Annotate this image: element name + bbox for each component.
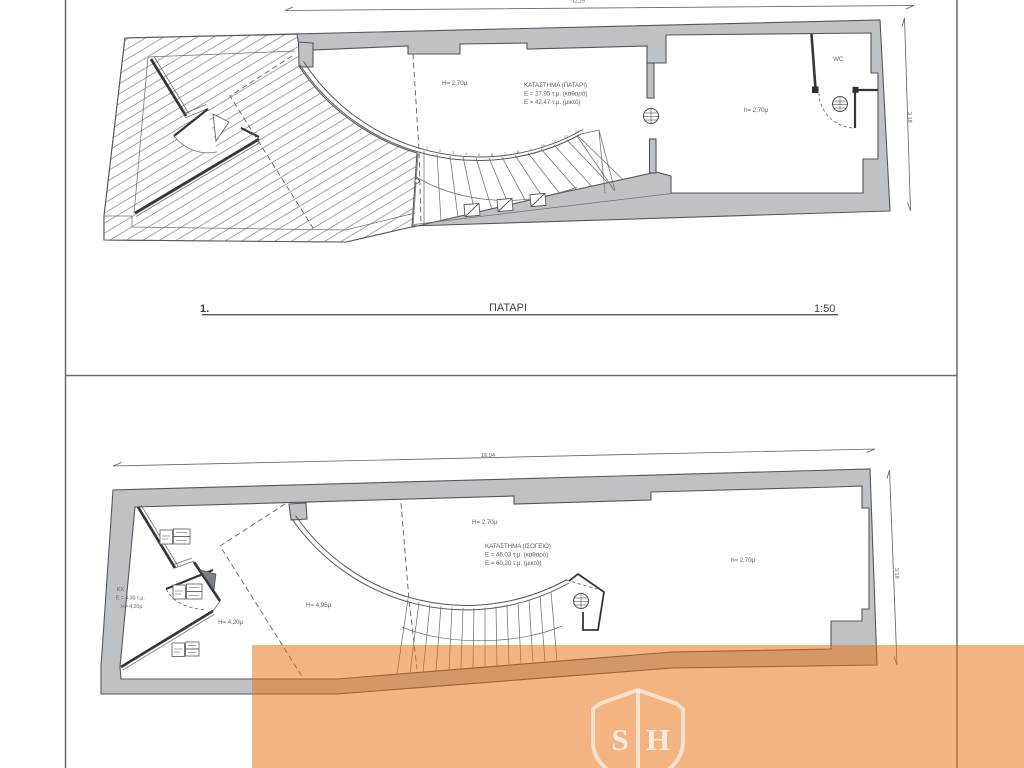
svg-text:ΚΑΤΑΣΤΗΜΑ (ΠΑΤΑΡΙ): ΚΑΤΑΣΤΗΜΑ (ΠΑΤΑΡΙ) [524,82,587,89]
svg-text:12,25: 12,25 [572,0,585,5]
svg-text:13: 13 [575,130,579,134]
svg-text:7: 7 [504,152,506,156]
svg-text:ΚΑΤΑΣΤΗΜΑ (ΙΣΟΓΕΙΟ): ΚΑΤΑΣΤΗΜΑ (ΙΣΟΓΕΙΟ) [485,543,551,550]
svg-text:8: 8 [517,150,519,154]
svg-text:9: 9 [530,148,532,152]
svg-text:11: 11 [553,140,557,144]
svg-text:ΚΧ: ΚΧ [117,587,124,593]
svg-text:Η= 4,20μ: Η= 4,20μ [218,619,244,626]
svg-text:h= 2,70μ: h= 2,70μ [731,557,755,564]
svg-text:H= 2,70μ: H= 2,70μ [442,80,468,87]
svg-text:Η= 4,95μ: Η= 4,95μ [306,602,332,609]
svg-text:Ε = 46,03 τ.μ. (καθαρό): Ε = 46,03 τ.μ. (καθαρό) [485,551,548,559]
svg-text:15,94: 15,94 [481,453,495,459]
svg-text:1.: 1. [200,303,209,315]
svg-text:1: 1 [426,146,428,150]
svg-text:12: 12 [564,135,568,139]
svg-text:2: 2 [439,149,441,153]
svg-text:3: 3 [452,151,454,155]
svg-text:Ε = 42,47 τ.μ. (μικτό): Ε = 42,47 τ.μ. (μικτό) [524,98,580,106]
svg-text:ΠΑΤΑΡΙ: ΠΑΤΑΡΙ [489,302,527,314]
svg-text:10: 10 [541,144,545,148]
svg-text:Ε = 60,20 τ.μ. (μικτό): Ε = 60,20 τ.μ. (μικτό) [485,559,541,567]
svg-text:3,18: 3,18 [893,568,899,579]
svg-text:H: H [646,722,670,757]
svg-text:1:50: 1:50 [814,303,835,315]
svg-text:5: 5 [478,153,480,157]
svg-text:S: S [611,722,628,757]
svg-text:WC: WC [833,56,844,63]
svg-text:3,18: 3,18 [906,112,912,123]
svg-text:h= 2,70μ: h= 2,70μ [744,107,768,114]
svg-text:Η= 4,20μ: Η= 4,20μ [121,604,142,610]
svg-text:Ε = 4,30 τ.μ.: Ε = 4,30 τ.μ. [116,596,145,602]
svg-text:Η= 2,70μ: Η= 2,70μ [472,519,498,526]
svg-text:4: 4 [465,152,467,156]
svg-text:Ε = 27,95 τ.μ. (καθαρά): Ε = 27,95 τ.μ. (καθαρά) [524,90,587,98]
svg-text:6: 6 [491,153,493,157]
